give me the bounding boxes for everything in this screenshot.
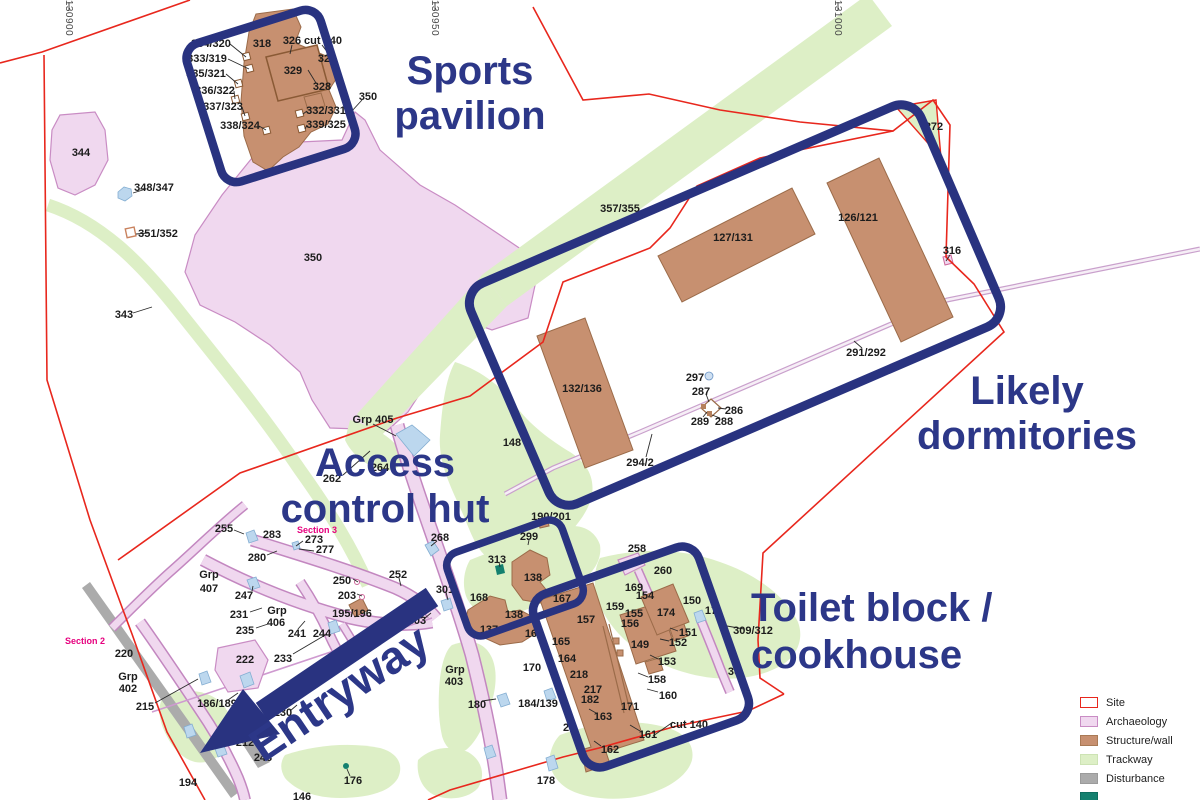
legend-swatch xyxy=(1080,716,1098,727)
legend-item xyxy=(1080,792,1198,800)
leader-line xyxy=(226,74,238,84)
feature-label: 255 xyxy=(215,523,233,535)
legend: SiteArchaeologyStructure/wallTrackwayDis… xyxy=(1080,697,1198,800)
feature-label: 194 xyxy=(179,777,198,789)
feature-label: 350 xyxy=(359,91,377,103)
feature-label: 231 xyxy=(230,609,248,621)
feature-label: 250 xyxy=(333,575,351,587)
feature-label: 174 xyxy=(657,607,676,619)
feature-label: 215 xyxy=(136,701,154,713)
feature-label: 350 xyxy=(304,252,322,264)
grid-coordinate: 130950 xyxy=(429,0,440,36)
feature-label: Grp xyxy=(267,605,287,617)
feature-label: 182 xyxy=(581,694,599,706)
feature-label: 333/319 xyxy=(187,53,227,65)
legend-item: Trackway xyxy=(1080,754,1198,765)
leader-line xyxy=(250,608,262,612)
feature-label: 283 xyxy=(263,529,281,541)
feature-label: 169 xyxy=(625,582,643,594)
feature-label: 162 xyxy=(601,744,619,756)
feature-label: 343 xyxy=(115,309,133,321)
legend-label: Archaeology xyxy=(1106,716,1167,728)
feature-label: 218 xyxy=(570,669,588,681)
legend-item: Structure/wall xyxy=(1080,735,1198,746)
legend-swatch xyxy=(1080,697,1098,708)
feature-label: 260 xyxy=(654,565,672,577)
feature-label: 268 xyxy=(431,532,449,544)
legend-label: Site xyxy=(1106,697,1125,709)
feature-label: 176 xyxy=(344,775,362,787)
feature-label: 299 xyxy=(520,531,538,543)
feature-label: 203 xyxy=(338,590,356,602)
feature-label: 160 xyxy=(659,690,677,702)
feature-label: 291/292 xyxy=(846,347,886,359)
feature-label: 146 xyxy=(293,791,311,800)
feature-label: 126/121 xyxy=(838,212,878,224)
feature-label: 148 xyxy=(503,437,521,449)
feature-label: 180 xyxy=(468,699,486,711)
feature-label: 178 xyxy=(537,775,555,787)
feature-label: 127/131 xyxy=(713,232,753,244)
feature-label: 220 xyxy=(115,648,133,660)
feature-label: Grp xyxy=(199,569,219,581)
legend-item: Archaeology xyxy=(1080,716,1198,727)
feature-label: 277 xyxy=(316,544,334,556)
feature-label: Grp xyxy=(445,664,465,676)
feature-351-352 xyxy=(125,227,136,238)
feature-label: 403 xyxy=(445,676,463,688)
feature-label: Grp xyxy=(118,671,138,683)
feature-label: 241 xyxy=(288,628,306,640)
feature-label: 157 xyxy=(577,614,595,626)
feature-label: Section 2 xyxy=(65,636,105,646)
feature-label: 158 xyxy=(648,674,666,686)
feature-label: 149 xyxy=(631,639,649,651)
legend-swatch xyxy=(1080,735,1098,746)
feature-label: 132/136 xyxy=(562,383,602,395)
legend-label: Structure/wall xyxy=(1106,735,1173,747)
feature-label: 235 xyxy=(236,625,254,637)
excavation-square xyxy=(297,124,306,133)
feature-label: 288 xyxy=(715,416,733,428)
feature-label: 407 xyxy=(200,583,218,595)
excavation-square xyxy=(234,79,243,88)
feature-label: 156 xyxy=(621,618,639,630)
feature-label: 247 xyxy=(235,590,253,602)
feature-label: 222 xyxy=(236,654,254,666)
structure-127-131 xyxy=(658,188,815,302)
feature-label: 258 xyxy=(628,543,646,555)
leader-line xyxy=(230,44,246,57)
feature-label: 280 xyxy=(248,552,266,564)
feature-label: 297 xyxy=(686,372,704,384)
excavation-square xyxy=(295,109,304,118)
feature-label: 164 xyxy=(558,653,577,665)
feature-label: 289 xyxy=(691,416,709,428)
annotation-sports-pavilion: Sportspavilion xyxy=(394,49,545,138)
legend-swatch xyxy=(1080,773,1098,784)
feature-label: 153 xyxy=(658,656,676,668)
feature-label: 233 xyxy=(274,653,292,665)
feature-label: 337/323 xyxy=(203,101,243,113)
feature-label: 326 xyxy=(283,35,301,47)
excavation-square xyxy=(262,126,271,135)
feature-label: 150 xyxy=(683,595,701,607)
feature-label: 184/139 xyxy=(518,698,558,710)
feature-label: 348/347 xyxy=(134,182,174,194)
feature-label: 338/324 xyxy=(220,120,261,132)
legend-label: Trackway xyxy=(1106,754,1153,766)
feature-label: 195/196 xyxy=(332,608,372,620)
feature-label: 294/2 xyxy=(626,457,654,469)
excavation-square xyxy=(245,64,254,73)
grid-coordinate: 131000 xyxy=(832,0,843,36)
feature-297 xyxy=(705,372,713,380)
feature-label: 351/352 xyxy=(138,228,178,240)
feature-label: 161 xyxy=(639,729,657,741)
leader-line xyxy=(234,530,244,534)
feature-label: 252 xyxy=(389,569,407,581)
feature-176-teal xyxy=(343,763,349,769)
feature-label: 138 xyxy=(524,572,542,584)
archaeology-222 xyxy=(215,640,268,692)
feature-label: 344 xyxy=(72,147,91,159)
excavation-square xyxy=(242,52,251,61)
site-plan-figure: 130900130950131000 334/320333/319335/321… xyxy=(0,0,1200,800)
feature-label: 332/331 xyxy=(306,105,346,117)
feature-label: 168 xyxy=(470,592,488,604)
feature-label: 159 xyxy=(606,601,624,613)
legend-label: Disturbance xyxy=(1106,773,1165,785)
leader-line xyxy=(638,673,648,677)
feature-label: 318 xyxy=(253,38,271,50)
feature-label: 406 xyxy=(267,617,285,629)
feature-label: 328 xyxy=(313,81,331,93)
feature-label: 171 xyxy=(621,701,639,713)
leader-line xyxy=(646,434,652,457)
structure-126-121 xyxy=(827,158,953,342)
feature-label: 329 xyxy=(284,65,302,77)
blue-feature xyxy=(497,693,510,707)
grid-labels: 130900130950131000 xyxy=(63,0,843,36)
feature-label: 163 xyxy=(594,711,612,723)
leader-line xyxy=(133,307,152,313)
feature-label: 313 xyxy=(488,554,506,566)
feature-label: 244 xyxy=(313,628,332,640)
feature-label: Grp 405 xyxy=(353,414,394,426)
feature-label: 316 xyxy=(943,245,961,257)
grid-coordinate: 130900 xyxy=(63,0,74,36)
leader-line xyxy=(647,689,658,692)
feature-label: 402 xyxy=(119,683,137,695)
site-map: 130900130950131000 334/320333/319335/321… xyxy=(0,0,1200,800)
feature-label: 339/325 xyxy=(306,119,346,131)
legend-swatch xyxy=(1080,792,1098,800)
feature-348-347 xyxy=(118,187,132,201)
legend-item: Disturbance xyxy=(1080,773,1198,784)
feature-label: 170 xyxy=(523,662,541,674)
legend-item: Site xyxy=(1080,697,1198,708)
legend-swatch xyxy=(1080,754,1098,765)
blue-feature xyxy=(199,671,211,685)
feature-label: 165 xyxy=(552,636,570,648)
feature-label: 152 xyxy=(669,637,687,649)
feature-label: 287 xyxy=(692,386,710,398)
